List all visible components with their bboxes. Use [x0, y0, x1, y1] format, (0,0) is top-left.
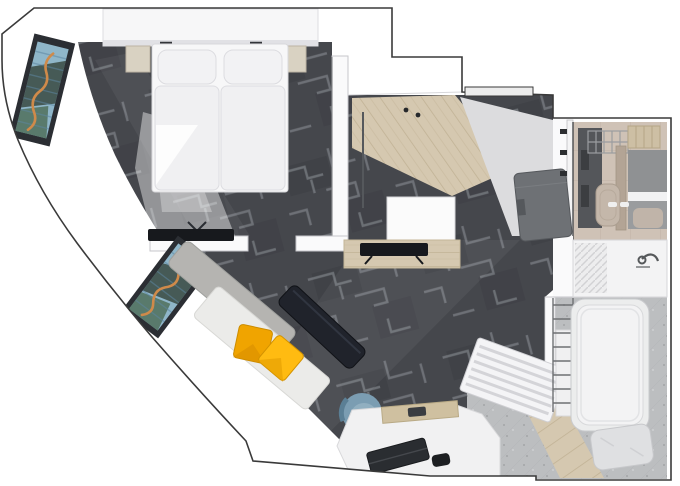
- ceiling-light-icon: [416, 113, 421, 118]
- tray-item: [408, 406, 427, 417]
- nightstand-left: [126, 46, 150, 72]
- hall-bench: [387, 197, 455, 241]
- wood-shelf: [628, 126, 660, 148]
- pillow-left: [158, 50, 216, 84]
- bathtub: [571, 299, 649, 431]
- tv-icon: [360, 243, 428, 256]
- entry-door: [465, 87, 533, 96]
- shower-niche: [581, 185, 589, 207]
- hall-wardrobe: [514, 168, 573, 241]
- flush-button: [608, 202, 617, 207]
- floor-plan-canvas: [0, 0, 680, 486]
- flush-button: [620, 202, 629, 207]
- bath-pillow: [590, 423, 655, 471]
- double-bed: [152, 44, 288, 192]
- ceiling-light-icon: [404, 108, 409, 113]
- bidet: [633, 208, 663, 228]
- sink-room-wall: [553, 236, 573, 297]
- duvet-right: [221, 86, 285, 190]
- bedroom-wall-right: [296, 236, 348, 251]
- pillow-right: [224, 50, 282, 84]
- tv-icon: [148, 229, 234, 241]
- bathroom: [578, 126, 667, 230]
- floor-plan: [0, 0, 680, 486]
- hall-wall: [332, 56, 348, 243]
- counter-texture: [575, 243, 607, 293]
- sink-room: [573, 240, 667, 297]
